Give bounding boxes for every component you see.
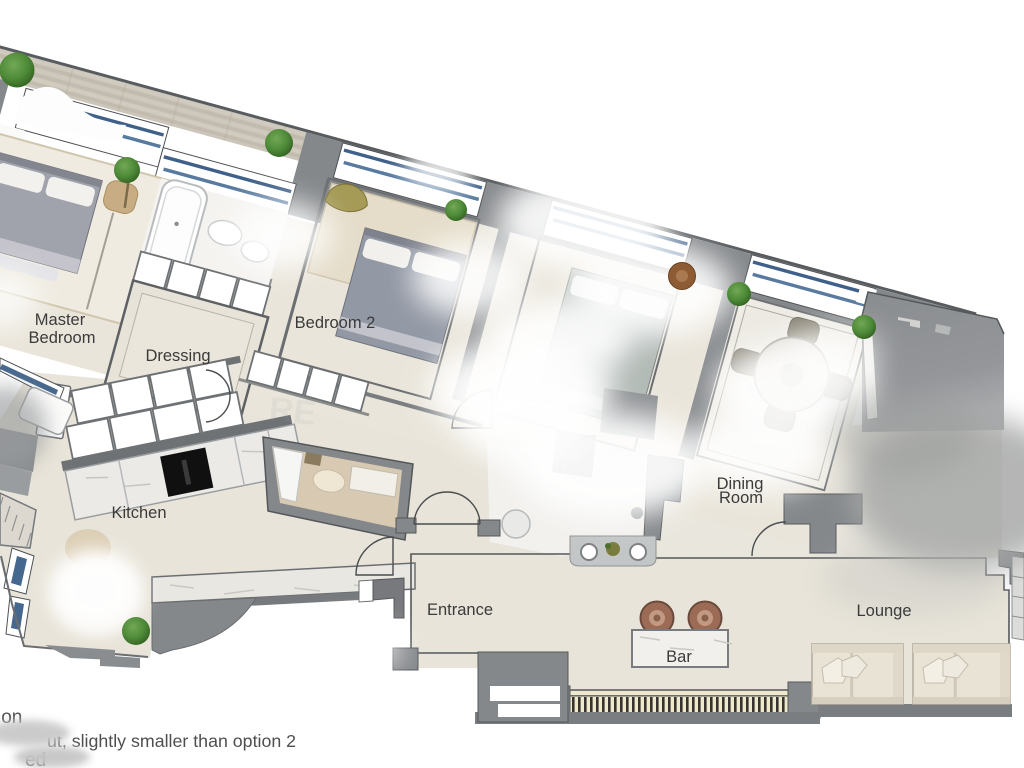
svg-text:Bar: Bar xyxy=(666,648,692,666)
svg-text:Dressing: Dressing xyxy=(145,347,210,365)
svg-text:RE: RE xyxy=(267,390,318,433)
svg-text:ut, slightly smaller than opti: ut, slightly smaller than option 2 xyxy=(47,731,296,751)
svg-text:Master: Master xyxy=(35,311,86,329)
svg-text:Kitchen: Kitchen xyxy=(111,504,166,522)
svg-text:Bedroom 2: Bedroom 2 xyxy=(295,314,376,332)
svg-text:Room: Room xyxy=(719,489,763,507)
svg-text:Lounge: Lounge xyxy=(856,602,911,620)
svg-text:Entrance: Entrance xyxy=(427,601,493,619)
svg-text:Bedroom: Bedroom xyxy=(29,329,96,347)
